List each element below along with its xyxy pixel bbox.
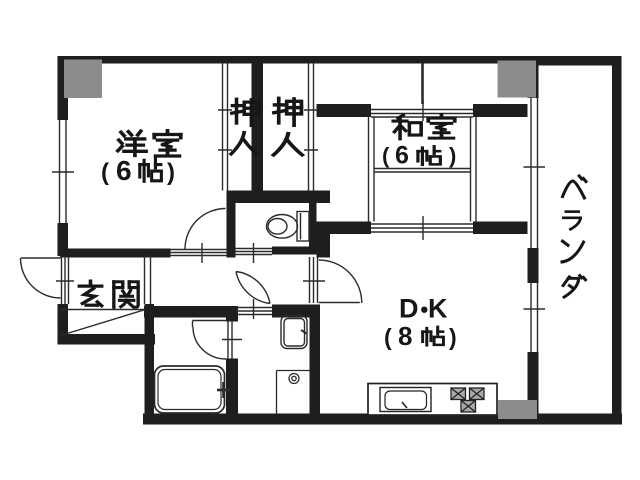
- svg-text:K: K: [428, 294, 448, 324]
- svg-text:): ): [449, 143, 456, 168]
- svg-text:(: (: [384, 324, 392, 350]
- svg-text:): ): [167, 159, 175, 186]
- svg-text:(: (: [101, 159, 109, 186]
- svg-text:): ): [449, 324, 457, 350]
- svg-text:8: 8: [398, 321, 412, 351]
- svg-text:6: 6: [116, 155, 132, 186]
- svg-text:D: D: [399, 294, 419, 324]
- svg-text:(: (: [382, 143, 390, 168]
- svg-text:6: 6: [395, 142, 409, 170]
